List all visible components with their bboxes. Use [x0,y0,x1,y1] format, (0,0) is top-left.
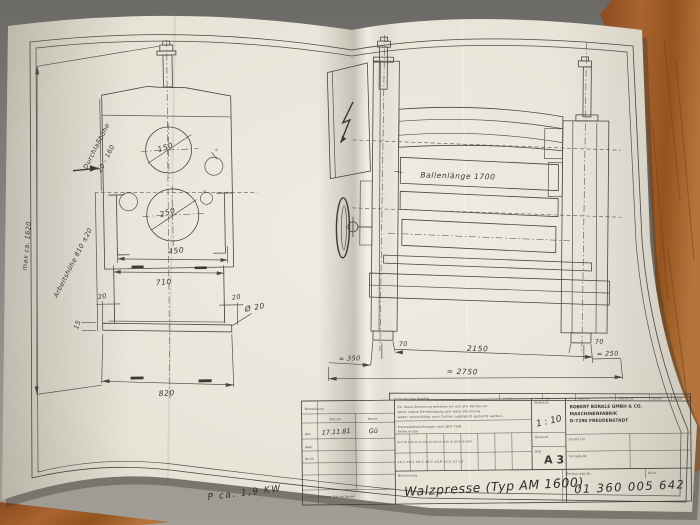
tb-col-name: Name [368,417,378,421]
tb-row-norm: Norm [305,457,314,461]
tb-bemerkung: Bemerkung [305,407,324,411]
tb-header-gewicht: Gewicht kg [618,396,633,400]
tb-tolerance-head: bis 6 ab 6 ab 30 ab 120 ab 400 ab 1000 a… [397,439,472,444]
tb-header-gestell: Gestell [502,396,511,400]
dim-450: 450 [168,245,185,256]
tb-vorlage-label: Vorlage-Nr. [569,454,588,458]
tb-row-gepr: gepr. [305,445,314,449]
photo-of-technical-drawing: 150 Ø 250 Ø 450 710 20 20 15 Ø 20 820 ma… [0,0,700,525]
tb-header-werknr: Werk-Nr. [578,396,589,400]
dim-20-left: 20 [97,292,107,301]
tb-header-modellnr: Zeichnungs- bzw. Modell-Nr. [393,396,430,400]
drawing-sheet-photo: 150 Ø 250 Ø 450 710 20 20 15 Ø 20 820 ma… [0,0,700,525]
dim-2750: ≈ 2750 [447,367,479,377]
tb-tolerance-title: Freimaßabweichungen nach DIN 7168 [398,424,462,429]
paper-sheet [0,0,700,525]
tb-title-label: Benennung [398,473,417,477]
dim-20-right: 20 [231,293,241,302]
dim-710: 710 [155,277,172,287]
dim-70-left: 70 [399,340,408,348]
tb-scale-label: Maßstab [534,400,548,404]
tb-sign-handwritten: Gü [368,427,378,436]
tb-sheet-label: Blatt [648,471,657,475]
tb-number-label: Zeichnungs-Nr. [566,472,592,476]
tb-company-3: D-7290 FREUDENSTADT [570,418,628,425]
tb-row-gez: gez. [305,432,312,436]
tb-header-fabrikat: Fabrikat [651,397,661,401]
dim-70-right: 70 [595,338,604,346]
paper-fold-shading [0,0,700,525]
dim-820: 820 [158,388,175,398]
tb-format-label: DIN [535,450,541,454]
tb-tolerance-values: ±0,1 ±0,2 ±0,3 ±0,5 ±0,8 ±1,2 ±2 ±3 [397,459,463,464]
dim-250: ≈ 250 [597,349,619,358]
dim-350: ≈ 350 [339,354,361,363]
tb-company-2: MASCHINENFABRIK [570,411,618,418]
tb-revision-bottom: Zust. Änderung Datum Name [305,494,354,500]
tb-ersatz-label: Ersatz für [569,437,586,441]
tb-tolerance-sub: Reihe mittel [398,429,419,433]
tb-col-datum: Datum [330,417,341,421]
tb-header-anzahl: Anzahl [673,397,682,401]
tb-weight-label: Gewicht [535,435,549,439]
tb-format-value: A 3 [544,453,564,466]
dim-2150: 2150 [467,344,489,354]
